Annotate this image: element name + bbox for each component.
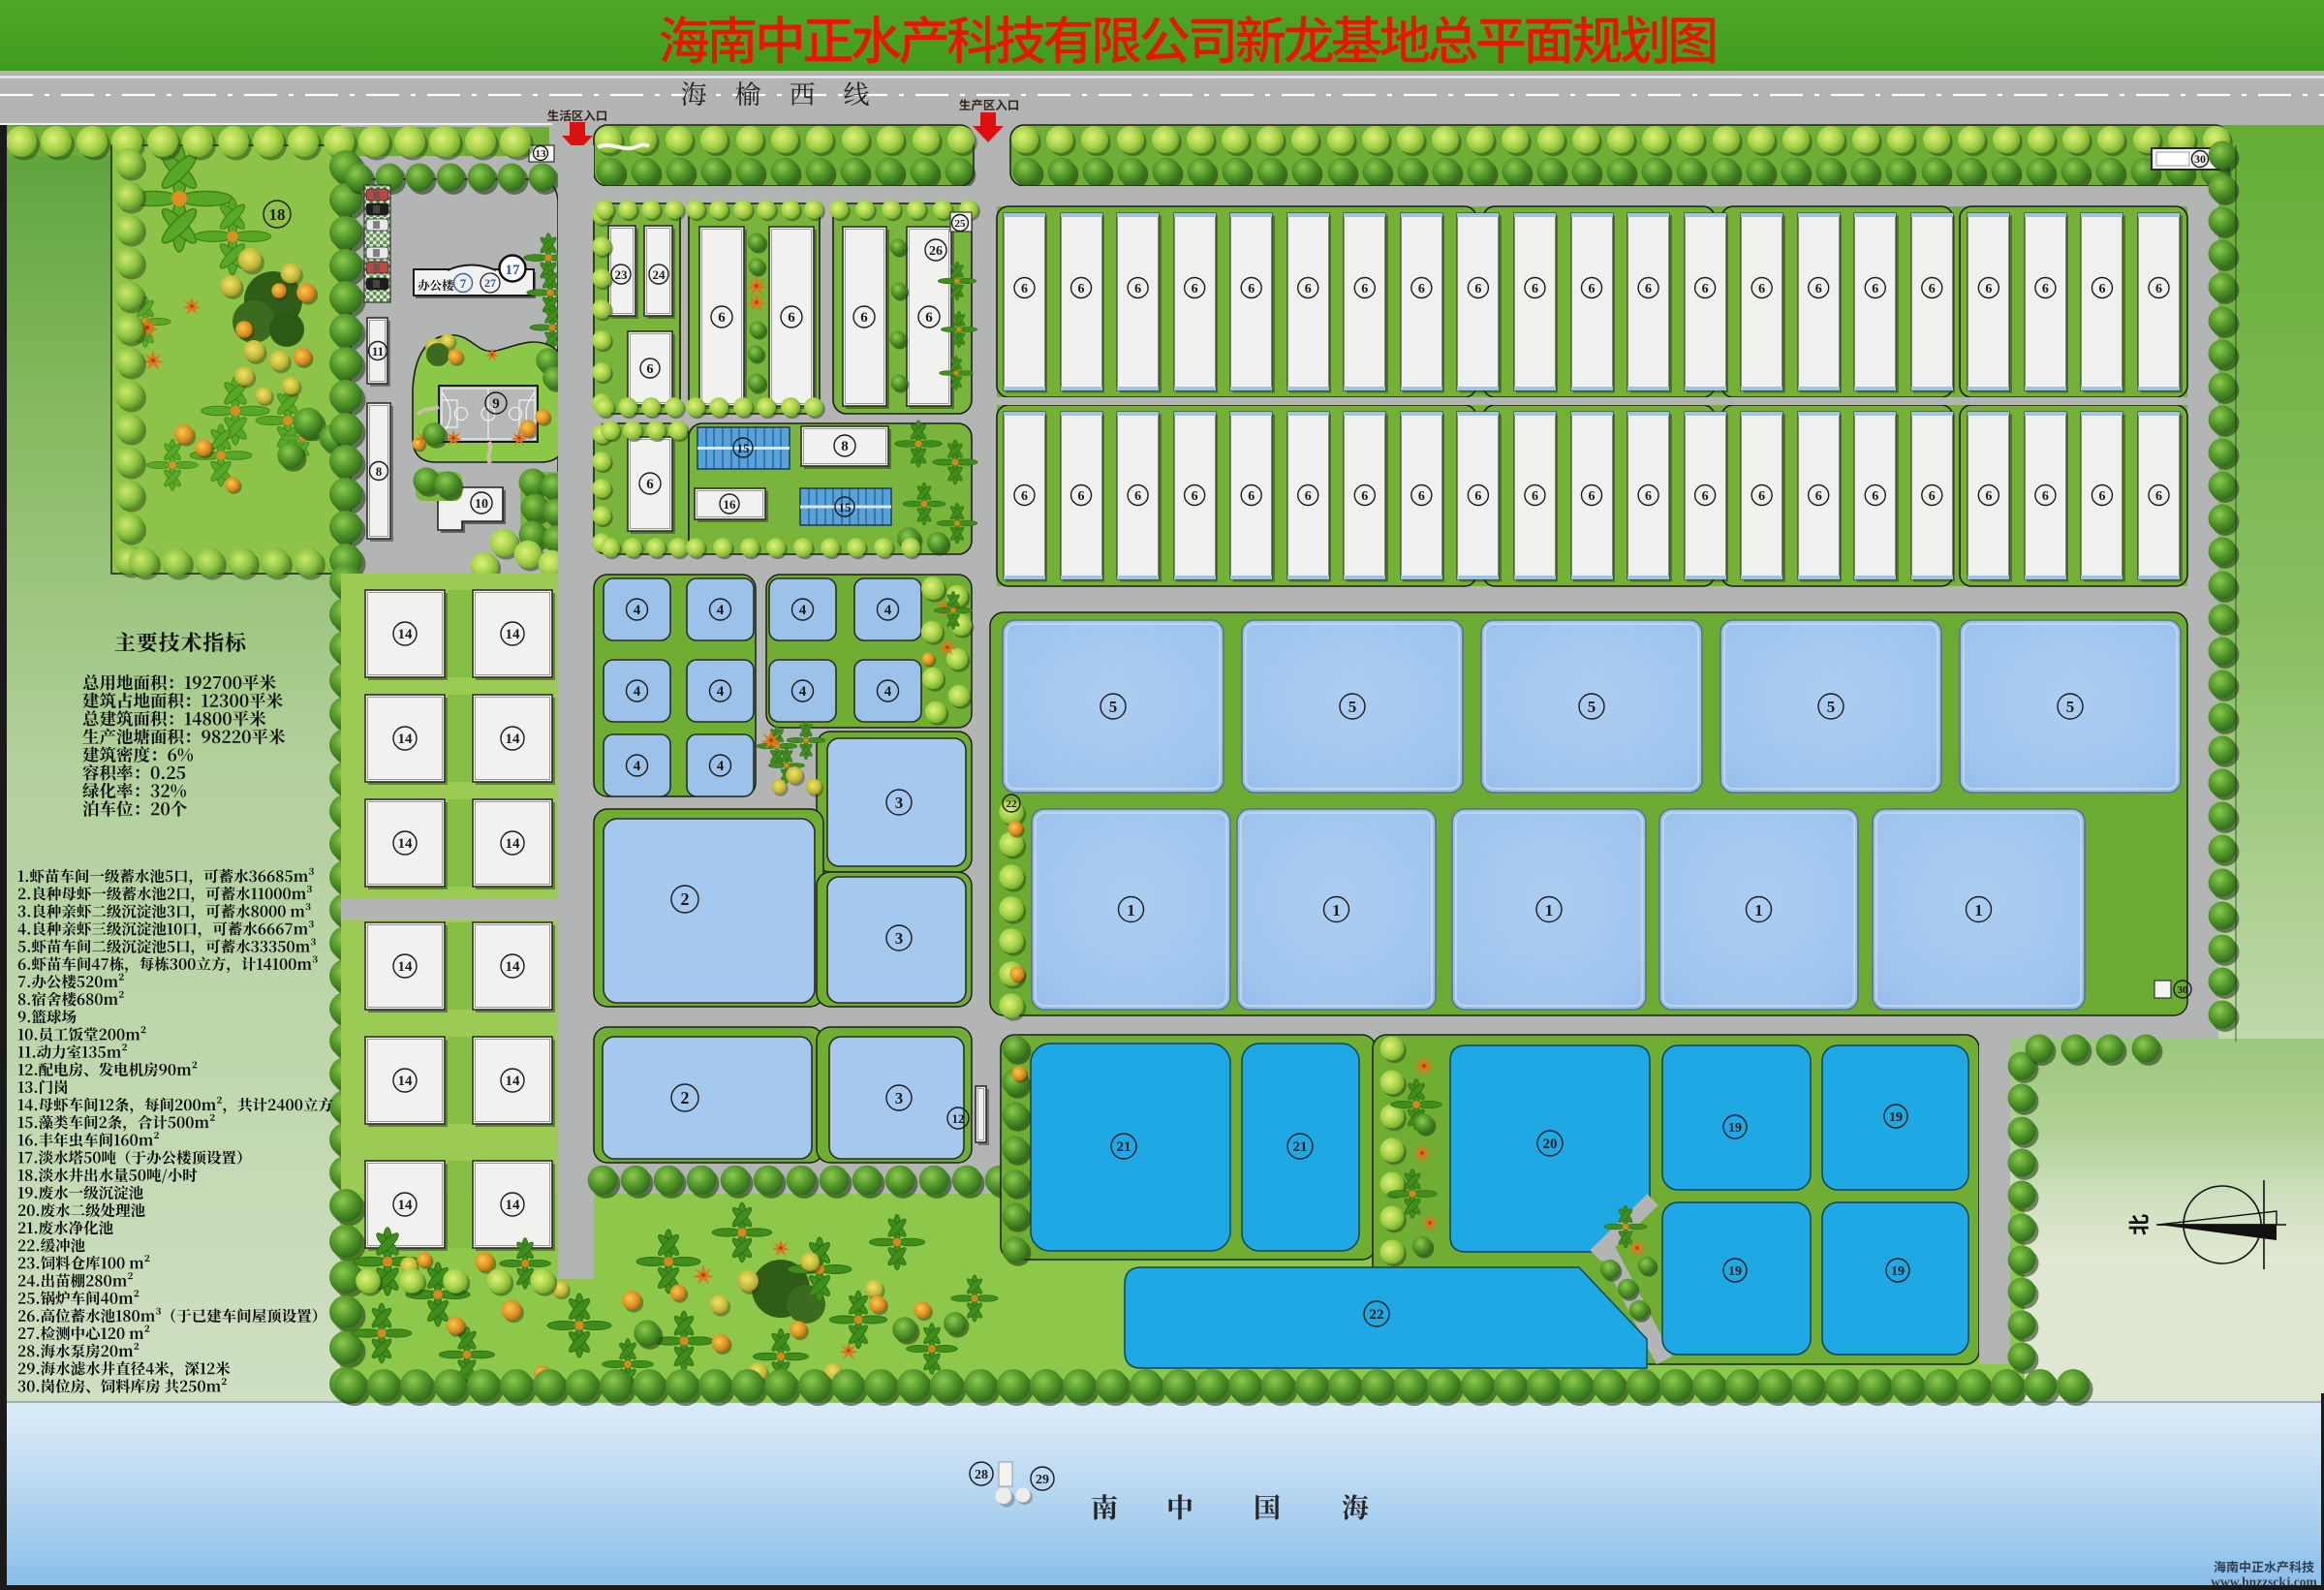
svg-text:14: 14: [506, 1198, 521, 1213]
svg-text:2: 2: [681, 889, 690, 909]
svg-text:6: 6: [1872, 282, 1878, 296]
svg-text:6: 6: [1929, 282, 1936, 296]
svg-text:6: 6: [647, 362, 654, 377]
svg-text:19: 19: [1891, 1264, 1905, 1279]
svg-text:5: 5: [1109, 698, 1118, 716]
svg-text:8: 8: [841, 439, 849, 454]
svg-text:5: 5: [1588, 698, 1596, 716]
svg-text:19: 19: [1889, 1110, 1903, 1125]
svg-text:5: 5: [2066, 698, 2075, 716]
svg-text:10: 10: [475, 497, 488, 512]
svg-text:14: 14: [398, 1198, 414, 1213]
svg-text:6: 6: [1985, 489, 1992, 504]
svg-text:4: 4: [799, 603, 807, 618]
svg-text:6: 6: [1305, 282, 1312, 296]
svg-text:18: 18: [269, 205, 286, 224]
svg-text:6: 6: [1758, 282, 1765, 296]
svg-text:6: 6: [2098, 489, 2105, 504]
svg-text:4: 4: [634, 684, 641, 700]
svg-text:14: 14: [398, 836, 414, 852]
svg-text:25: 25: [955, 218, 967, 230]
svg-text:3: 3: [895, 1089, 904, 1107]
svg-text:6: 6: [1702, 489, 1709, 504]
svg-text:14: 14: [506, 959, 521, 975]
svg-text:6: 6: [1815, 282, 1822, 296]
svg-text:17: 17: [506, 263, 521, 278]
svg-text:16: 16: [724, 497, 737, 512]
svg-text:30: 30: [2194, 152, 2206, 166]
svg-text:6: 6: [1248, 282, 1255, 296]
svg-text:15: 15: [839, 500, 852, 514]
svg-text:14: 14: [506, 1074, 521, 1089]
svg-text:6: 6: [1872, 489, 1878, 504]
svg-text:23: 23: [615, 267, 629, 282]
svg-text:6: 6: [718, 310, 726, 326]
svg-text:2: 2: [681, 1088, 690, 1107]
svg-text:4: 4: [717, 759, 725, 774]
svg-text:6: 6: [1361, 282, 1368, 296]
svg-text:4: 4: [884, 603, 892, 618]
svg-text:6: 6: [1532, 282, 1538, 296]
svg-text:14: 14: [506, 627, 521, 642]
svg-text:6: 6: [1248, 489, 1255, 504]
svg-text:6: 6: [1078, 282, 1085, 296]
svg-text:6: 6: [1815, 489, 1822, 504]
svg-text:6: 6: [1361, 489, 1368, 504]
svg-text:4: 4: [799, 684, 807, 700]
svg-text:14: 14: [398, 627, 414, 642]
svg-text:1: 1: [1754, 901, 1763, 920]
svg-text:6: 6: [1532, 489, 1538, 504]
svg-text:6: 6: [1985, 282, 1992, 296]
svg-text:6: 6: [2042, 282, 2049, 296]
svg-text:24: 24: [653, 267, 666, 282]
svg-text:6: 6: [1192, 282, 1198, 296]
svg-text:6: 6: [1134, 282, 1141, 296]
svg-text:11: 11: [372, 344, 384, 359]
svg-text:27: 27: [484, 276, 496, 290]
svg-text:14: 14: [398, 732, 414, 747]
svg-text:14: 14: [398, 959, 414, 975]
svg-text:6: 6: [788, 310, 795, 326]
svg-text:6: 6: [1078, 489, 1085, 504]
svg-text:6: 6: [2155, 489, 2162, 504]
svg-text:6: 6: [1021, 489, 1028, 504]
svg-text:4: 4: [634, 603, 641, 618]
svg-text:21: 21: [1117, 1139, 1131, 1155]
svg-text:6: 6: [2155, 282, 2162, 296]
svg-text:14: 14: [506, 836, 521, 852]
svg-text:3: 3: [895, 929, 904, 948]
svg-text:6: 6: [1418, 489, 1425, 504]
svg-text:22: 22: [1007, 798, 1018, 810]
svg-text:29: 29: [1036, 1473, 1049, 1487]
svg-text:6: 6: [2042, 489, 2049, 504]
svg-text:6: 6: [1589, 282, 1596, 296]
svg-text:5: 5: [1348, 698, 1357, 716]
svg-text:8: 8: [376, 464, 383, 479]
svg-text:6: 6: [1758, 489, 1765, 504]
svg-text:14: 14: [506, 732, 521, 747]
svg-text:3: 3: [895, 794, 904, 812]
svg-text:4: 4: [634, 759, 641, 774]
svg-text:1: 1: [1545, 901, 1554, 920]
svg-text:9: 9: [492, 396, 500, 412]
svg-text:30: 30: [2178, 984, 2189, 996]
svg-text:6: 6: [1418, 282, 1425, 296]
svg-text:1: 1: [1127, 901, 1135, 920]
svg-text:6: 6: [1645, 282, 1652, 296]
svg-text:15: 15: [737, 441, 751, 455]
svg-text:20: 20: [1543, 1137, 1558, 1152]
svg-text:19: 19: [1728, 1121, 1742, 1136]
svg-text:6: 6: [1645, 489, 1652, 504]
svg-text:6: 6: [1134, 489, 1141, 504]
svg-text:1: 1: [1332, 901, 1341, 920]
svg-text:6: 6: [1474, 282, 1481, 296]
svg-text:12: 12: [952, 1111, 965, 1126]
svg-text:26: 26: [929, 244, 943, 259]
svg-text:28: 28: [975, 1468, 988, 1482]
svg-text:6: 6: [646, 477, 654, 492]
svg-text:6: 6: [1702, 282, 1709, 296]
svg-text:5: 5: [1827, 698, 1836, 716]
svg-text:6: 6: [1589, 489, 1596, 504]
svg-text:1: 1: [1974, 901, 1983, 920]
svg-text:14: 14: [398, 1074, 414, 1089]
svg-text:19: 19: [1728, 1264, 1742, 1279]
svg-text:13: 13: [536, 148, 547, 160]
svg-text:6: 6: [1305, 489, 1312, 504]
svg-text:4: 4: [717, 684, 725, 700]
svg-text:4: 4: [884, 684, 892, 700]
svg-text:6: 6: [1474, 489, 1481, 504]
svg-text:6: 6: [860, 310, 868, 326]
svg-text:6: 6: [1021, 282, 1028, 296]
svg-text:6: 6: [925, 310, 933, 326]
svg-text:6: 6: [2098, 282, 2105, 296]
svg-text:21: 21: [1293, 1139, 1308, 1155]
svg-text:22: 22: [1370, 1307, 1384, 1323]
svg-text:7: 7: [460, 276, 467, 291]
svg-text:4: 4: [717, 603, 725, 618]
svg-text:6: 6: [1929, 489, 1936, 504]
svg-text:6: 6: [1192, 489, 1198, 504]
